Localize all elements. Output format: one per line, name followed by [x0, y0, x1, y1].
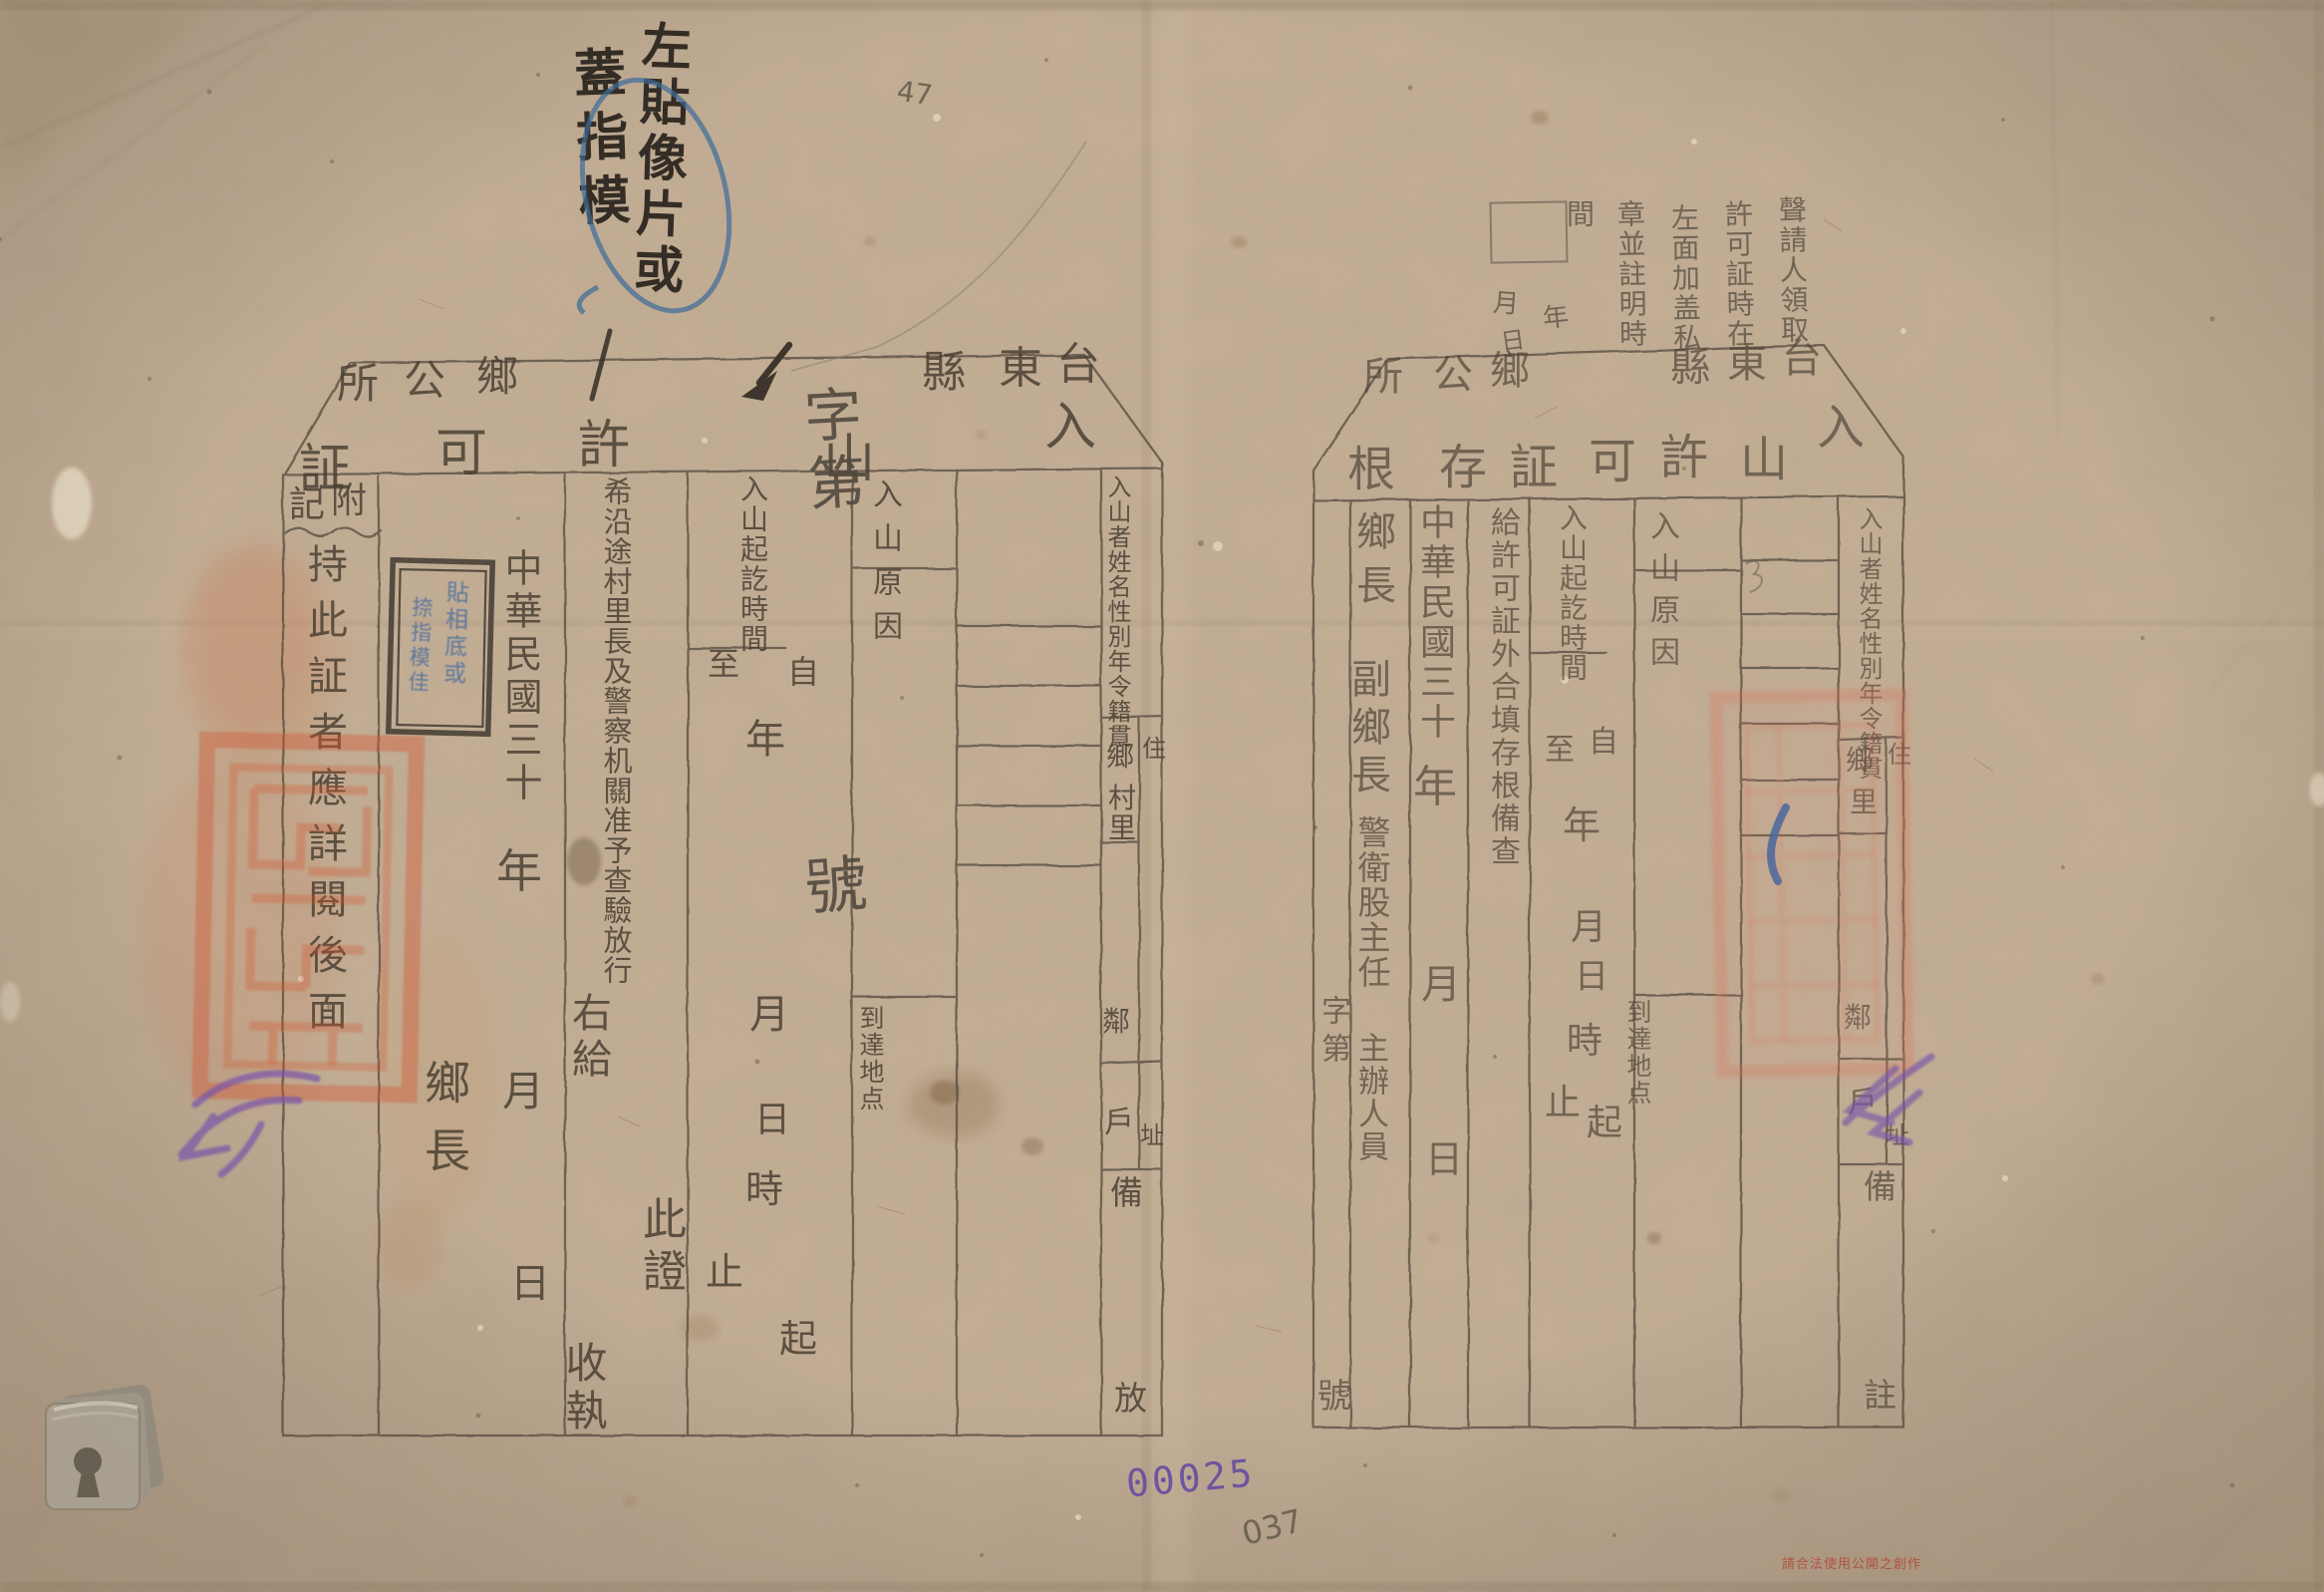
right-office-char: 公: [1433, 355, 1473, 395]
claim-note-col: 聲請人領取: [1777, 195, 1808, 345]
left-name-column-label: 入山者姓名性別年令籍貫: [1104, 475, 1128, 749]
right-county-char: 東: [1727, 344, 1767, 384]
right-date-day: 日: [1425, 1141, 1463, 1179]
left-destination-label: 到達地点: [857, 1005, 882, 1113]
left-from-marker: 自: [787, 656, 819, 688]
right-title-char: 許: [1660, 435, 1708, 482]
left-unit-month: 月: [749, 995, 789, 1035]
right-stub-clause: 給許可証外合填存根備查: [1487, 506, 1517, 868]
right-ref-suffix: 號: [1317, 1381, 1351, 1415]
left-date-year: 年: [496, 849, 542, 895]
right-remark-bottom: 註: [1864, 1381, 1896, 1414]
left-this-certificate: 此證: [638, 1196, 682, 1300]
claim-note-col: 左面加盖私: [1669, 203, 1700, 353]
right-unit-year: 年: [1563, 807, 1600, 845]
claim-note-col: 許可証時在: [1723, 199, 1754, 349]
scan-grain-overlay: [0, 0, 2324, 1592]
right-from-marker: 自: [1589, 728, 1618, 758]
right-signer-4: 主辦人員: [1355, 1032, 1386, 1163]
left-appendix-text: 持此証者應詳閱後面: [304, 543, 344, 1046]
pencil-number: 037: [1239, 1504, 1306, 1550]
right-office-char: 鄉: [1490, 351, 1530, 391]
right-residence-bottom: 址: [1886, 1124, 1909, 1148]
left-date-era: 中華民國三十: [500, 548, 538, 805]
serial-number-stamp: 00025: [1125, 1453, 1257, 1502]
right-signer-2: 副鄉長: [1347, 658, 1387, 801]
stamp-box-blue-note: 貼相底或: [440, 580, 467, 689]
pencil-date-year: 年: [1542, 304, 1571, 333]
big-ref-suffix: 號: [803, 853, 869, 919]
right-title-char: 証: [1510, 445, 1558, 492]
left-residence-bottom: 址: [1140, 1124, 1164, 1148]
left-issued-to: 右給: [568, 992, 608, 1084]
left-addr-unit: 戶: [1104, 1109, 1134, 1138]
pencil-box: [1490, 201, 1567, 262]
left-addr-unit: 鄉: [1106, 744, 1134, 772]
right-addr-unit: 鄰: [1844, 1005, 1872, 1033]
left-unit-year: 年: [745, 720, 785, 760]
right-addr-unit: 里: [1850, 790, 1878, 817]
right-unit-month: 月: [1571, 909, 1606, 945]
right-to-marker: 至: [1545, 736, 1575, 766]
left-office-char: 所: [337, 364, 379, 406]
left-title-char: 可: [436, 429, 487, 480]
left-residence-top: 住: [1142, 738, 1166, 762]
photo-note-line1: 左貼像片或: [629, 19, 689, 300]
pencil-date-month: 月: [1492, 290, 1520, 318]
right-unit-hour: 時: [1567, 1023, 1602, 1059]
right-title-char: 入: [1817, 405, 1865, 453]
left-addr-unit: 鄰: [1102, 1009, 1130, 1037]
left-receipt: 收執: [561, 1341, 603, 1436]
right-signer-3: 警衛股主任: [1353, 815, 1386, 990]
right-remark-top: 備: [1864, 1172, 1896, 1205]
library-stamp-icon: [46, 1384, 165, 1509]
claim-note-col: 章並註明時: [1615, 199, 1646, 349]
right-date-month: 月: [1421, 965, 1461, 1005]
right-date-era: 中華民國三十: [1417, 503, 1453, 743]
left-office-char: 公: [404, 361, 445, 403]
left-county-char: 東: [999, 347, 1042, 391]
right-county-char: 縣: [1670, 348, 1710, 388]
right-title-char: 可: [1589, 439, 1636, 486]
right-name-column-label: 入山者姓名性別年令籍貫: [1856, 506, 1880, 781]
left-remark-bottom: 放: [1114, 1384, 1147, 1417]
right-office-char: 所: [1363, 357, 1403, 397]
left-unit-day: 日: [754, 1102, 790, 1137]
right-addr-unit: 鄉: [1846, 748, 1874, 776]
left-addr-unit: 里: [1108, 815, 1136, 843]
photo-note-line2: 蓋指模: [567, 45, 626, 238]
right-ref-prefix: 字第: [1317, 995, 1347, 1071]
blue-pen-mark: [1771, 807, 1786, 881]
right-date-year: 年: [1413, 766, 1457, 809]
left-appendix-label-char: 附: [331, 482, 367, 518]
left-end-suffix: 止: [706, 1254, 743, 1292]
pencil-squiggle: [1746, 561, 1762, 592]
left-period-label: 入山起訖時間: [737, 475, 765, 654]
scanned-permit-document: 台 東 縣 鄉 公 所 入 山 許 可 証 入山者姓名性別年令籍貫 住 址 鄉 …: [0, 0, 2324, 1592]
left-to-marker: 至: [708, 648, 739, 680]
right-title-char: 根: [1347, 447, 1395, 494]
right-destination-label: 到達地点: [1624, 999, 1649, 1107]
stamp-box-blue-note: 捺指模佳: [406, 596, 432, 697]
left-remark-top: 備: [1110, 1178, 1143, 1211]
left-unit-hour: 時: [745, 1171, 783, 1209]
pencil-date-day: 日: [1499, 327, 1526, 354]
left-county-char: 縣: [922, 351, 966, 395]
left-addr-unit: 村: [1108, 786, 1136, 813]
right-period-label: 入山起訖時間: [1557, 503, 1585, 683]
left-office-char: 鄉: [476, 357, 518, 399]
right-end-suffix: 止: [1545, 1085, 1581, 1120]
claim-note-col: 間: [1565, 199, 1593, 227]
form-ruled-lines: [0, 0, 2324, 1592]
ink-slash-mark: [592, 331, 610, 399]
right-signer-1: 鄉長: [1352, 510, 1392, 618]
right-residence-top: 住: [1888, 744, 1911, 768]
right-start-suffix: 起: [1587, 1105, 1622, 1140]
purple-scribble-left: [181, 1074, 317, 1174]
left-appendix-label-char: 記: [289, 486, 325, 522]
left-title-char: 許: [578, 421, 630, 473]
left-signer: 鄉長: [421, 1059, 466, 1194]
right-reason-label: 入山原因: [1646, 510, 1676, 678]
left-reason-label: 入山原因: [869, 478, 899, 654]
big-ref-prefix: 字第: [797, 384, 862, 522]
left-start-suffix: 起: [779, 1321, 817, 1359]
right-title-char: 山: [1740, 437, 1788, 484]
right-title-char: 存: [1439, 445, 1487, 492]
left-date-day: 日: [510, 1264, 550, 1304]
left-request-clause: 希沿途村里長及警察机關准予查驗放行: [600, 477, 629, 985]
left-county-char: 台: [1056, 343, 1100, 387]
left-date-month: 月: [502, 1072, 544, 1114]
footer-red-text: 請合法使用公開之創作: [1782, 1557, 1921, 1570]
paper-texture: [0, 0, 2324, 1592]
stamps-and-marks: [0, 0, 2324, 1592]
left-title-char: 入: [1044, 403, 1096, 455]
pencil-mark: 47: [895, 78, 934, 111]
right-addr-unit: 戶: [1848, 1089, 1878, 1118]
right-unit-day: 日: [1575, 961, 1608, 995]
